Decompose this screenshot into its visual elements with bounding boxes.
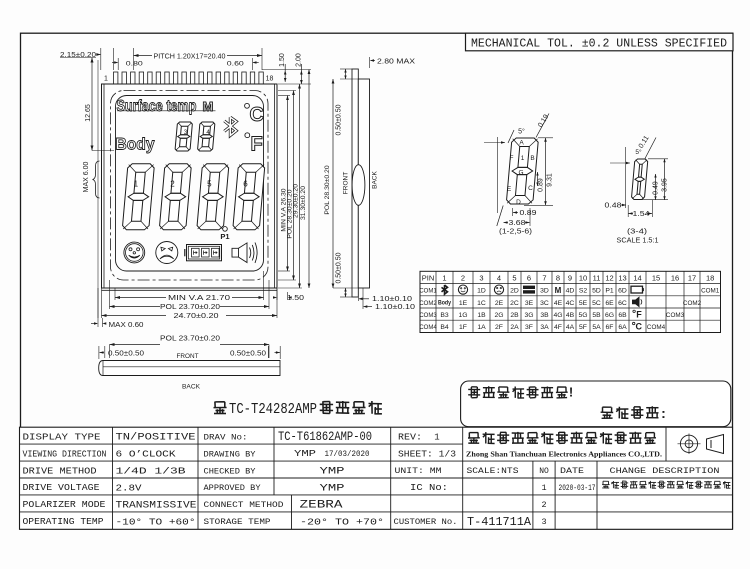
svg-text:0.60: 0.60 — [227, 60, 245, 67]
svg-text:13: 13 — [618, 274, 626, 283]
svg-text:5°: 5° — [518, 128, 525, 136]
svg-text:COM4: COM4 — [419, 325, 437, 331]
svg-text:3B: 3B — [540, 312, 549, 319]
svg-text:31.30±0.20: 31.30±0.20 — [300, 186, 307, 220]
svg-text:4A: 4A — [566, 324, 575, 331]
svg-text:1C: 1C — [477, 300, 486, 307]
svg-text:Body: Body — [438, 301, 452, 307]
svg-text:B: B — [530, 155, 534, 162]
svg-text:1A: 1A — [477, 324, 486, 331]
svg-text:VIEWING DIRECTION: VIEWING DIRECTION — [23, 449, 107, 459]
svg-text:S2: S2 — [579, 288, 588, 295]
svg-text:COM3: COM3 — [419, 313, 437, 319]
svg-text:7: 7 — [542, 274, 546, 283]
svg-text:0.50±0.50: 0.50±0.50 — [336, 252, 343, 283]
svg-text:M: M — [555, 286, 562, 295]
svg-text:6E: 6E — [605, 300, 614, 307]
svg-text:5: 5 — [512, 274, 516, 283]
svg-text:0.50±0.50: 0.50±0.50 — [336, 104, 343, 135]
svg-text:24.70±0.20: 24.70±0.20 — [174, 313, 219, 320]
svg-text:6: 6 — [527, 274, 531, 283]
svg-text:PITCH 1.20X17=20.40: PITCH 1.20X17=20.40 — [154, 54, 226, 61]
svg-text:1.54: 1.54 — [633, 211, 650, 218]
svg-text:MECHANICAL TOL. ±0.2 UNLESS SP: MECHANICAL TOL. ±0.2 UNLESS SPECIFIED — [471, 38, 727, 51]
svg-text:11: 11 — [593, 274, 601, 283]
svg-text:SCALE:NTS: SCALE:NTS — [467, 466, 519, 476]
svg-text:3D: 3D — [540, 288, 549, 295]
svg-text:6A: 6A — [618, 324, 627, 331]
svg-text:2G: 2G — [494, 312, 503, 319]
svg-text:5°: 5° — [635, 148, 642, 156]
svg-text:COM3: COM3 — [666, 312, 685, 319]
svg-text:1B: 1B — [477, 312, 486, 319]
svg-text:COM2: COM2 — [683, 300, 702, 307]
svg-text:18: 18 — [706, 274, 714, 283]
svg-text:STORAGE TEMP: STORAGE TEMP — [204, 517, 271, 527]
svg-text:OPERATING TEMP: OPERATING TEMP — [23, 517, 104, 527]
svg-text:6G: 6G — [605, 312, 614, 319]
svg-text:2D: 2D — [510, 288, 519, 295]
svg-text:5A: 5A — [592, 324, 601, 331]
svg-text:!: ! — [569, 385, 573, 400]
svg-text:12.65: 12.65 — [85, 104, 92, 122]
svg-text:F: F — [636, 310, 642, 320]
svg-text:0.50±0.50: 0.50±0.50 — [230, 351, 266, 358]
svg-text:CONNECT METHOD: CONNECT METHOD — [204, 500, 284, 510]
svg-text:Body: Body — [116, 135, 156, 154]
svg-text:6 O’CLOCK: 6 O’CLOCK — [116, 449, 176, 460]
svg-text:COM1: COM1 — [701, 288, 720, 295]
svg-text:DRAV No:: DRAV No: — [204, 432, 248, 442]
svg-text:5D: 5D — [592, 288, 601, 295]
svg-text:-20° TO +70°: -20° TO +70° — [300, 516, 384, 527]
svg-text:2F: 2F — [495, 324, 503, 331]
svg-text:YMP: YMP — [294, 449, 316, 459]
svg-text:D: D — [516, 199, 521, 206]
svg-text:(1-2,5-6): (1-2,5-6) — [499, 227, 533, 236]
svg-text:MAX 6.00: MAX 6.00 — [83, 162, 90, 193]
svg-text:3: 3 — [479, 274, 483, 283]
svg-text:B3: B3 — [440, 312, 449, 319]
svg-text:1.10±0.10: 1.10±0.10 — [375, 304, 415, 311]
svg-text:15: 15 — [652, 274, 660, 283]
svg-text:3A: 3A — [540, 324, 549, 331]
svg-text:P1: P1 — [605, 288, 614, 295]
svg-text:1/4D 1/3B: 1/4D 1/3B — [116, 466, 186, 477]
svg-text:C: C — [528, 185, 533, 192]
svg-text:1: 1 — [541, 483, 546, 493]
svg-text:1F: 1F — [459, 324, 467, 331]
svg-text:4G: 4G — [553, 312, 562, 319]
svg-text:3E: 3E — [525, 300, 534, 307]
svg-text:5: 5 — [207, 180, 212, 189]
svg-text:2020-03-17: 2020-03-17 — [559, 484, 596, 493]
svg-text:9.31: 9.31 — [547, 173, 554, 187]
svg-text:17/03/2020: 17/03/2020 — [325, 449, 370, 459]
svg-text:2.80 MAX: 2.80 MAX — [377, 59, 415, 66]
svg-text:2.8V: 2.8V — [116, 482, 142, 493]
svg-text:1: 1 — [104, 76, 108, 83]
svg-text:1: 1 — [521, 155, 525, 162]
svg-text:8: 8 — [556, 274, 560, 283]
svg-text:2C: 2C — [510, 300, 519, 307]
svg-text:Zhong Shan Tianchuan Electroni: Zhong Shan Tianchuan Electronics Applian… — [466, 451, 662, 459]
svg-text:CHECKED BY: CHECKED BY — [204, 466, 256, 476]
svg-text:POLARIZER MODE: POLARIZER MODE — [23, 500, 106, 510]
svg-text:CUSTOMER No.: CUSTOMER No. — [394, 517, 458, 527]
svg-text:1D: 1D — [477, 288, 486, 295]
svg-text:3G: 3G — [524, 312, 533, 319]
svg-text:F: F — [251, 134, 263, 156]
svg-text:4C: 4C — [566, 300, 575, 307]
svg-text:0.89: 0.89 — [520, 210, 537, 217]
svg-text:5G: 5G — [578, 312, 587, 319]
svg-text:3F: 3F — [525, 324, 533, 331]
svg-text:0.80: 0.80 — [126, 60, 144, 67]
svg-text:POL 23.70±0.20: POL 23.70±0.20 — [160, 336, 220, 343]
svg-text:0.50±0.50: 0.50±0.50 — [108, 351, 144, 358]
svg-text:IC No:: IC No: — [410, 482, 448, 493]
svg-text:2: 2 — [461, 274, 465, 283]
svg-text:6D: 6D — [618, 288, 627, 295]
svg-text:2: 2 — [541, 500, 546, 510]
svg-text:1: 1 — [434, 432, 439, 442]
svg-text:BACK: BACK — [182, 384, 201, 391]
svg-text:4: 4 — [497, 274, 501, 283]
svg-text:DATE: DATE — [560, 466, 584, 476]
svg-text::: : — [661, 405, 666, 421]
svg-text:TN/POSITIVE: TN/POSITIVE — [116, 432, 196, 444]
svg-text:4F: 4F — [554, 324, 562, 331]
svg-text:17: 17 — [688, 274, 696, 283]
svg-text:0.89: 0.89 — [538, 178, 545, 192]
svg-text:BACK: BACK — [372, 170, 379, 188]
svg-text:DISPLAY TYPE: DISPLAY TYPE — [23, 432, 101, 442]
svg-text:C: C — [250, 104, 264, 126]
svg-text:2B: 2B — [510, 312, 519, 319]
svg-text:29.30±0.20: 29.30±0.20 — [292, 184, 299, 218]
svg-text:M: M — [203, 99, 214, 114]
svg-text:2E: 2E — [495, 300, 504, 307]
svg-text:P1: P1 — [220, 232, 229, 241]
svg-text:NO: NO — [539, 467, 549, 476]
svg-text:3.95: 3.95 — [662, 178, 669, 192]
svg-text:-10° TO +60°: -10° TO +60° — [116, 516, 196, 527]
svg-text:1: 1 — [134, 180, 139, 189]
svg-text:2A: 2A — [510, 324, 519, 331]
svg-text:FRONT: FRONT — [177, 353, 199, 360]
svg-text:6: 6 — [243, 180, 248, 189]
svg-text:0.49: 0.49 — [653, 181, 660, 195]
svg-text:3C: 3C — [540, 300, 549, 307]
svg-text:1G: 1G — [458, 312, 467, 319]
svg-text:COM1: COM1 — [419, 289, 437, 295]
svg-text:5B: 5B — [592, 312, 601, 319]
svg-text:3: 3 — [541, 517, 546, 527]
svg-text:DRIVE VOLTAGE: DRIVE VOLTAGE — [23, 483, 100, 493]
svg-text:4B: 4B — [566, 312, 575, 319]
svg-text:APPROVED BY: APPROVED BY — [204, 483, 261, 493]
svg-text:ZEBRA: ZEBRA — [300, 499, 344, 511]
svg-text:2.15±0.20: 2.15±0.20 — [60, 52, 96, 59]
svg-text:9: 9 — [568, 274, 572, 283]
svg-text:REV:: REV: — [398, 432, 422, 442]
svg-text:4D: 4D — [566, 288, 575, 295]
svg-text:C: C — [635, 322, 642, 332]
svg-text:PIN: PIN — [422, 274, 435, 283]
svg-text:A: A — [519, 140, 524, 147]
svg-text:12: 12 — [605, 274, 613, 283]
svg-text:(3-4): (3-4) — [627, 227, 648, 236]
svg-text:YMP: YMP — [320, 466, 345, 478]
svg-text:POL 23.70±0.20: POL 23.70±0.20 — [160, 304, 220, 311]
svg-text:B4: B4 — [440, 324, 449, 331]
svg-text:5F: 5F — [579, 324, 587, 331]
svg-text:F: F — [510, 155, 514, 162]
svg-text:4E: 4E — [554, 300, 563, 307]
svg-text:T-411711A: T-411711A — [467, 516, 531, 529]
svg-text:POL 28.30±0.20: POL 28.30±0.20 — [324, 165, 331, 214]
svg-text:1.10±0.10: 1.10±0.10 — [372, 296, 412, 303]
svg-text:COM4: COM4 — [647, 324, 666, 331]
svg-text:6F: 6F — [606, 324, 614, 331]
svg-text:0.48: 0.48 — [605, 203, 622, 210]
svg-text:5E: 5E — [579, 300, 588, 307]
svg-text:DRIVE METHOD: DRIVE METHOD — [23, 466, 97, 476]
svg-text:18: 18 — [266, 76, 274, 83]
svg-text:G: G — [518, 170, 523, 177]
svg-text:CHANGE DESCRIPTION: CHANGE DESCRIPTION — [610, 466, 720, 476]
svg-text:16: 16 — [671, 274, 679, 283]
svg-text:6B: 6B — [618, 312, 627, 319]
svg-text:YMP: YMP — [320, 483, 345, 495]
svg-text:COM2: COM2 — [419, 301, 437, 307]
svg-text:TC-T24282AMP: TC-T24282AMP — [229, 402, 317, 418]
svg-text:14: 14 — [633, 274, 641, 283]
svg-text:TRANSMISSIVE: TRANSMISSIVE — [116, 499, 197, 511]
svg-text:E: E — [507, 186, 512, 193]
svg-text:FRONT: FRONT — [343, 172, 350, 194]
svg-text:DRAWING BY: DRAWING BY — [204, 449, 256, 459]
svg-text:SCALE 1.5:1: SCALE 1.5:1 — [617, 236, 659, 245]
svg-text:UNIT: MM: UNIT: MM — [395, 466, 442, 476]
svg-text:MAX 0.60: MAX 0.60 — [109, 322, 144, 329]
svg-text:1E: 1E — [459, 300, 468, 307]
svg-text:5C: 5C — [592, 300, 601, 307]
svg-text:MIN V.A 21.70: MIN V.A 21.70 — [168, 295, 230, 302]
svg-text:Surface temp: Surface temp — [117, 98, 197, 115]
svg-text:10: 10 — [579, 274, 587, 283]
svg-text:TC-T61862AMP-00: TC-T61862AMP-00 — [278, 430, 372, 444]
svg-text:6C: 6C — [618, 300, 627, 307]
svg-text:1.50: 1.50 — [287, 295, 304, 302]
svg-text:2: 2 — [170, 180, 175, 189]
svg-text:SHEET: 1/3: SHEET: 1/3 — [398, 449, 456, 460]
svg-text:1: 1 — [442, 274, 446, 283]
